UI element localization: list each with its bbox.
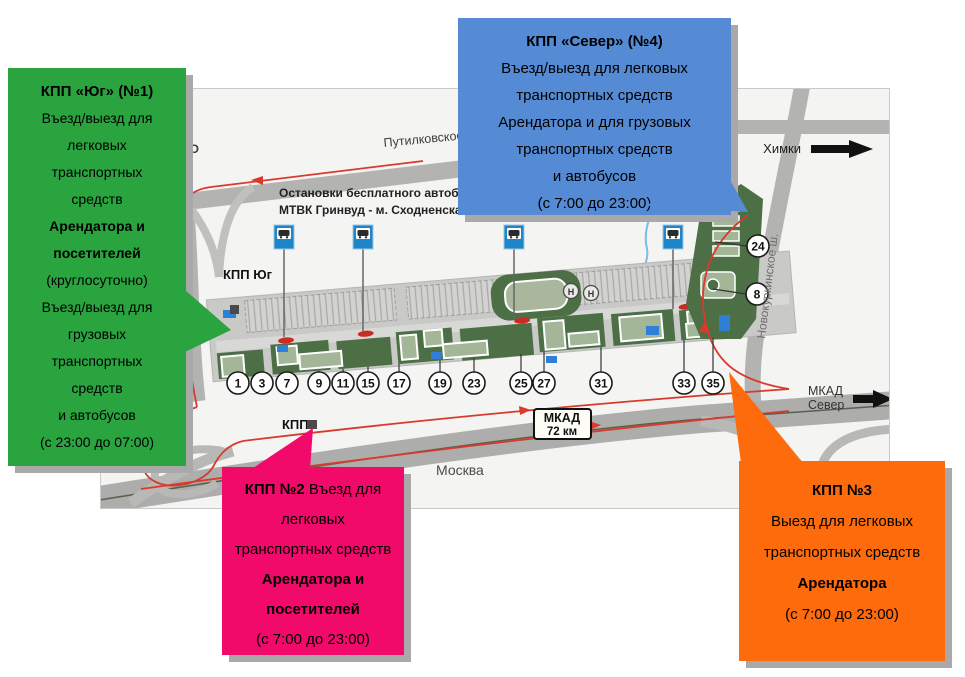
callout-line: посетителей xyxy=(222,595,404,625)
callout-line: средств xyxy=(8,186,186,213)
callout-line: Арендатора и xyxy=(222,565,404,595)
callout-line: средств xyxy=(8,375,186,402)
bus-note-line2: МТВК Гринвуд - м. Сходненская xyxy=(279,203,469,217)
svg-text:7: 7 xyxy=(284,377,291,391)
bus-note-line1: Остановки бесплатного автобуса xyxy=(279,186,479,200)
svg-text:3: 3 xyxy=(259,377,266,391)
mkad-72km-sign: МКАД 72 км xyxy=(534,409,591,439)
callout-line: (с 7:00 до 23:00) xyxy=(739,599,945,630)
building-number-badge: 3 xyxy=(251,372,273,394)
svg-text:72 км: 72 км xyxy=(547,426,577,438)
helipad-letter: Н xyxy=(588,289,595,299)
kpp-yug-marker-square xyxy=(230,305,239,314)
callout-line: посетителей xyxy=(8,240,186,267)
callout-line: (с 7:00 до 23:00) xyxy=(458,190,731,217)
khimki-direction: Химки xyxy=(763,140,873,158)
building-number-badge: 9 xyxy=(308,371,330,394)
callout-line: Выезд для легковых xyxy=(739,506,945,537)
scheme-page: Н Н xyxy=(0,0,965,677)
callout-line: Арендатора xyxy=(739,568,945,599)
callout-line: КПП №3 xyxy=(739,475,945,506)
callout-line: КПП «Юг» (№1) xyxy=(8,78,186,105)
callout-line: Въезд/выезд для xyxy=(8,294,186,321)
callout-line: транспортных средств xyxy=(222,535,404,565)
svg-text:25: 25 xyxy=(514,377,528,391)
building-number-badge: 23 xyxy=(463,358,485,394)
callout-line: (с 7:00 до 23:00) xyxy=(222,625,404,655)
callout-kpp-2: КПП №2 Въезд длялегковыхтранспортных сре… xyxy=(222,467,404,655)
callout-line: Въезд/выезд для xyxy=(8,105,186,132)
callout-line: (круглосуточно) xyxy=(8,267,186,294)
building-number-badge: 19 xyxy=(429,361,451,394)
svg-text:15: 15 xyxy=(361,377,375,391)
svg-text:27: 27 xyxy=(537,377,551,391)
svg-text:24: 24 xyxy=(751,240,765,254)
moscow-label: Москва xyxy=(436,462,484,478)
callout-line: транспортных xyxy=(8,159,186,186)
kpp-yug-label: КПП Юг xyxy=(223,267,273,282)
svg-text:МКАД: МКАД xyxy=(544,411,581,425)
callout-line: (с 23:00 до 07:00) xyxy=(8,429,186,456)
road-label-putilkovskoe: Путилковское xyxy=(383,128,464,150)
svg-text:31: 31 xyxy=(594,377,608,391)
callout-line: Арендатора и для грузовых xyxy=(458,109,731,136)
callout-line: и автобусов xyxy=(458,163,731,190)
callout-line: и автобусов xyxy=(8,402,186,429)
building-number-badge: 35 xyxy=(702,338,724,394)
callout-kpp-sever: КПП «Север» (№4)Въезд/выезд для легковых… xyxy=(458,18,731,215)
callout-line: Арендатора и xyxy=(8,213,186,240)
building-number-badge: 1 xyxy=(227,372,249,394)
building-number-badge: 15 xyxy=(357,367,379,394)
building-number-badge: 11 xyxy=(332,369,354,394)
building-number-badge: 33 xyxy=(673,340,695,394)
svg-text:33: 33 xyxy=(677,377,691,391)
svg-text:11: 11 xyxy=(337,377,350,391)
svg-text:17: 17 xyxy=(392,377,406,391)
callout-line: транспортных средств xyxy=(739,537,945,568)
callout-kpp-yug: КПП «Юг» (№1)Въезд/выезд длялегковыхтран… xyxy=(8,68,186,466)
callout-line: КПП «Север» (№4) xyxy=(458,28,731,55)
khimki-label: Химки xyxy=(763,141,801,156)
callout-line: Въезд/выезд для легковых xyxy=(458,55,731,82)
mkad-sever-label-1: МКАД xyxy=(808,384,843,398)
callout-line: транспортных средств xyxy=(458,82,731,109)
helipad-letter: Н xyxy=(568,287,575,297)
callout-kpp-3: КПП №3Выезд для легковыхтранспортных сре… xyxy=(739,461,945,661)
kpp-label: КПП xyxy=(282,417,309,432)
building-number-badge: 31 xyxy=(590,347,612,394)
svg-text:23: 23 xyxy=(467,377,481,391)
callout-line: транспортных xyxy=(8,348,186,375)
callout-line: транспортных средств xyxy=(458,136,731,163)
svg-text:35: 35 xyxy=(706,377,720,391)
mkad-sever-label-2: Север xyxy=(808,398,844,412)
svg-text:1: 1 xyxy=(235,377,242,391)
building-number-badge: 17 xyxy=(388,364,410,394)
building-number-badge: 25 xyxy=(510,354,532,394)
callout-line: КПП №2 Въезд для xyxy=(222,475,404,505)
building-number-badge: 7 xyxy=(276,372,298,394)
callout-line: легковых xyxy=(8,132,186,159)
kpp-2-marker-square xyxy=(308,420,317,429)
svg-text:9: 9 xyxy=(316,377,323,391)
svg-text:19: 19 xyxy=(433,377,447,391)
callout-line: легковых xyxy=(222,505,404,535)
callout-line: грузовых xyxy=(8,321,186,348)
